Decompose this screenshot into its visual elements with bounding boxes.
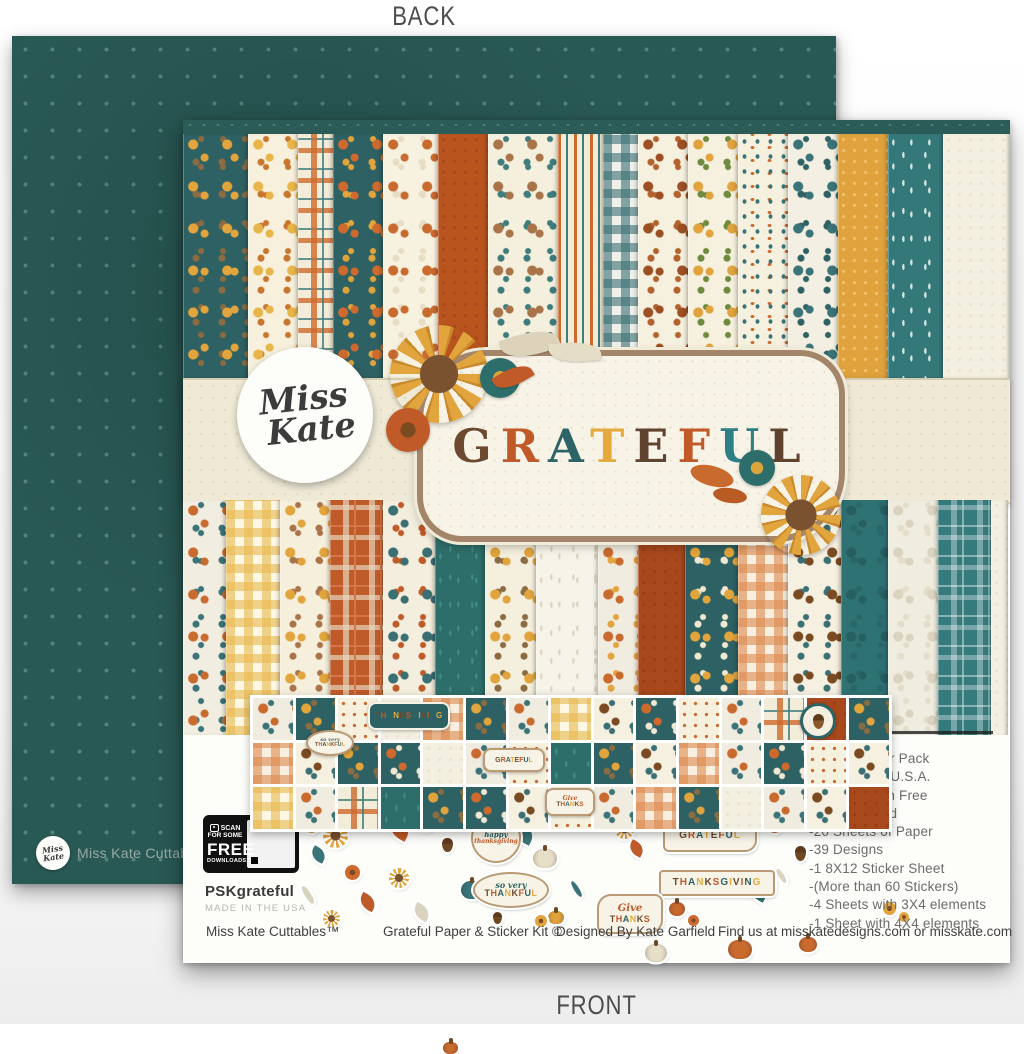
logo-script-kate: Kate xyxy=(266,410,358,450)
sticker-sheet-tile xyxy=(849,743,889,785)
footer-product-title: Grateful Paper & Sticker Kit © xyxy=(383,924,562,939)
sticker-sheet-tile xyxy=(679,698,719,740)
sticker-sunflower xyxy=(389,868,409,888)
sticker-sheet-tile xyxy=(636,743,676,785)
sticker-sheet-tile xyxy=(679,787,719,829)
cover-top-band xyxy=(183,120,1010,134)
sticker-sheet-tile xyxy=(807,743,847,785)
sticker-sheet-tile xyxy=(807,787,847,829)
sticker-acorn xyxy=(442,838,453,852)
paper-strip-plain-cream xyxy=(943,134,1010,378)
sticker-sheet-tile xyxy=(636,787,676,829)
made-in-usa-text: MADE IN THE USA xyxy=(205,903,306,914)
sticker-sheet-tile xyxy=(253,787,293,829)
sku-code: PSKgrateful xyxy=(205,883,306,900)
sticker-sheet-tile xyxy=(253,698,293,740)
footer-designer: Designed By Kate Garfield xyxy=(556,924,715,939)
sticker-sheet-tile xyxy=(636,698,676,740)
teal-flower-decoration xyxy=(739,450,775,486)
so-very-thankful-sticker: so very THANKFUL xyxy=(473,872,549,908)
footer-find-us: Find us at misskatedesigns.com or misska… xyxy=(718,924,1012,939)
paper-strip-teal-gingham xyxy=(603,134,638,378)
qr-caption: SCAN FOR SOME FREE DOWNLOADS! xyxy=(207,824,243,864)
sticker-sheet-tile xyxy=(466,698,506,740)
camera-icon xyxy=(210,824,219,832)
sticker-sheet-tile xyxy=(338,787,378,829)
thanksgiving-tile-sticker: THANKSGIVING xyxy=(368,702,450,730)
sunflower-decoration xyxy=(761,475,841,555)
sticker-sheet-tile xyxy=(253,743,293,785)
sticker-sheet-tile xyxy=(849,787,889,829)
paper-strip-autumn-stripes xyxy=(558,134,603,378)
sticker-sheet-tile xyxy=(764,698,804,740)
grateful-tile-sticker: GRATEFUL xyxy=(483,748,545,772)
paper-strip-cream-multi-pumpkins xyxy=(183,500,226,735)
sticker-pumpkin xyxy=(548,911,564,924)
paper-strip-teal-dense-floral xyxy=(333,134,383,378)
paper-strip-cream-yellow-flowers xyxy=(248,134,298,378)
orange-flower-decoration xyxy=(386,408,430,452)
sticker-sheet-tile xyxy=(551,743,591,785)
paper-strip-teal-white-sprigs xyxy=(888,134,943,378)
sticker-sheet-tile xyxy=(509,698,549,740)
sticker-pumpkin xyxy=(443,1042,458,1054)
sticker-sheet-tile xyxy=(849,698,889,740)
detail-item: -(More than 60 Stickers) xyxy=(809,878,1009,896)
front-paper-pack-cover: GRATEFUL Miss Kate THANKSGIVING so very … xyxy=(183,120,1010,963)
sticker-sheet-tile xyxy=(466,787,506,829)
sticker-sheet-tile xyxy=(509,787,549,829)
sticker-sheet-tile xyxy=(423,743,463,785)
sticker-flower xyxy=(345,865,360,880)
miss-kate-mini-logo: Miss Kate xyxy=(34,834,72,872)
sticker-pumpkin xyxy=(645,944,667,962)
so-very-thankful-tile-sticker: so very THANKFUL xyxy=(306,730,354,756)
paper-strip-multicolor-dots xyxy=(738,134,788,378)
thanksgiving-sticker: THANKSGIVING xyxy=(659,870,775,896)
detail-item: -4 Sheets with 3X4 elements xyxy=(809,896,1009,914)
sticker-sheet-tile xyxy=(594,743,634,785)
acorn-badge-tile xyxy=(800,703,836,739)
paper-strip-beige-leaf-silhouettes xyxy=(888,500,938,735)
give-thanks-tile-sticker: Give THANKS xyxy=(545,788,595,816)
sticker-sheet-tile xyxy=(423,787,463,829)
sticker-pumpkin xyxy=(669,902,685,915)
sticker-sheet-tile xyxy=(381,787,421,829)
sticker-sheet-tile xyxy=(722,698,762,740)
paper-strip-teal-plaid xyxy=(938,500,991,735)
sticker-sheet-tile xyxy=(551,698,591,740)
footer-row: Miss Kate Cuttables™ Grateful Paper & St… xyxy=(183,924,1010,946)
sticker-sheet-tile xyxy=(296,787,336,829)
sticker-sheet-tile xyxy=(722,743,762,785)
sticker-sheet-tile xyxy=(594,698,634,740)
sticker-sheet-tile xyxy=(722,787,762,829)
paper-strip-teal-sunflowers xyxy=(183,134,248,378)
paper-strip-cream-brown-seeds xyxy=(638,134,688,378)
paper-strip-solid-mustard xyxy=(838,134,888,378)
footer-brand: Miss Kate Cuttables™ xyxy=(206,924,340,939)
paper-strip-plain-edge xyxy=(991,500,1008,735)
top-paper-strips xyxy=(183,134,1010,378)
paper-strip-autumn-plaid xyxy=(298,134,333,378)
sticker-pumpkin xyxy=(533,849,557,869)
front-label: FRONT xyxy=(257,990,935,1021)
sticker-sheet-tile xyxy=(679,743,719,785)
detail-item: -1 8X12 Sticker Sheet xyxy=(809,860,1009,878)
paper-strip-cream-teal-flowers xyxy=(788,134,838,378)
sticker-sheet-tile xyxy=(381,743,421,785)
sticker-sheet-tile xyxy=(764,787,804,829)
back-label: BACK xyxy=(86,1,762,32)
detail-item: -39 Designs xyxy=(809,841,1009,859)
sticker-sheet-tile xyxy=(594,787,634,829)
paper-strip-cream-yellow-tulips xyxy=(688,134,738,378)
sticker-sheet-tile xyxy=(764,743,804,785)
